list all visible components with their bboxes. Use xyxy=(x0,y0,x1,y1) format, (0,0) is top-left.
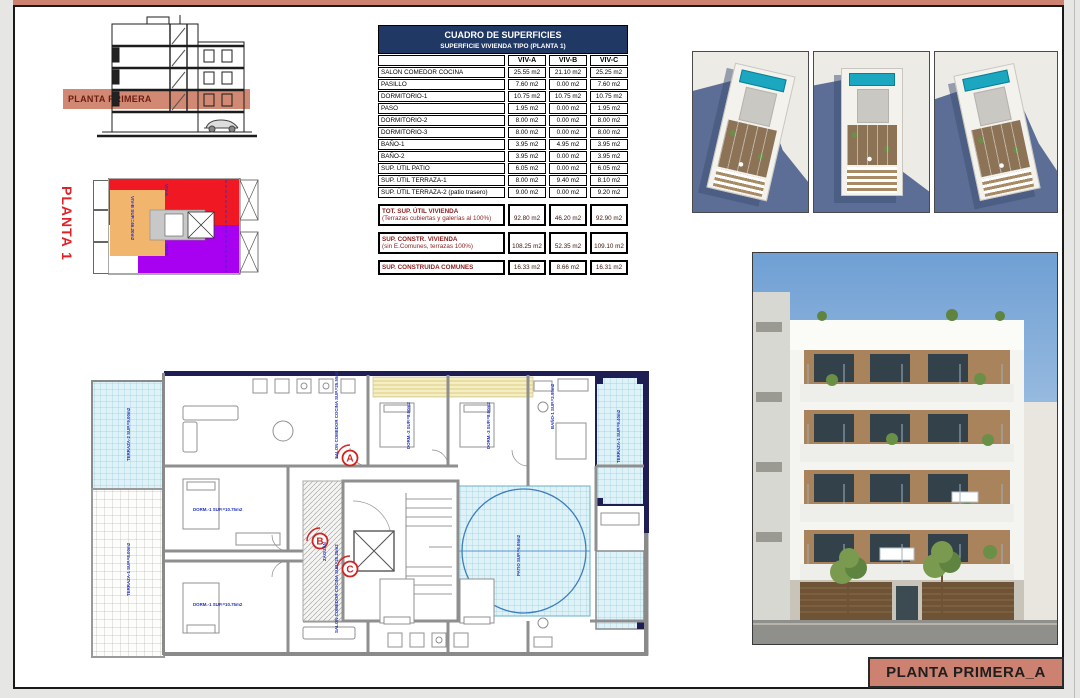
row-value: 8.10 m2 xyxy=(590,175,628,186)
table-summary-row: SUP. CONSTRUIDA COMUNES16.33 m28.66 m216… xyxy=(378,260,628,275)
row-value: 6.05 m2 xyxy=(508,163,546,174)
room-label: DORM.-2 SUP.=8.00m2 xyxy=(406,402,411,449)
table-row: SALON COMEDOR COCINA25.55 m221.10 m225.2… xyxy=(378,67,628,78)
summary-label: SUP. CONSTR. VIVIENDA(sin E.Comunes, ter… xyxy=(378,232,505,254)
row-value: 10.75 m2 xyxy=(549,91,587,102)
table-row: BAÑO-23.95 m20.00 m23.95 m2 xyxy=(378,151,628,162)
table-row: DORMITORIO-28.00 m20.00 m28.00 m2 xyxy=(378,115,628,126)
room-label: DORM.-1 SUP.=10.75m2 xyxy=(193,507,243,512)
elevator-icon xyxy=(354,531,394,571)
row-value: 0.00 m2 xyxy=(549,151,587,162)
sheet-title: PLANTA PRIMERA_A xyxy=(886,664,1046,681)
row-value: 3.95 m2 xyxy=(590,139,628,150)
room-label: BAÑO-1 SUP.=3.95m2 xyxy=(550,383,555,429)
table-row: SUP. ÚTIL PATIO6.05 m20.00 m26.05 m2 xyxy=(378,163,628,174)
table-summary-row: TOT. SUP. ÚTIL VIVIENDA(Terrazas cubiert… xyxy=(378,204,628,226)
row-value: 8.00 m2 xyxy=(508,115,546,126)
summary-value: 92.80 m2 xyxy=(508,204,546,226)
top-accent-bar xyxy=(13,0,1064,5)
row-value: 0.00 m2 xyxy=(549,127,587,138)
table-row: SUP. ÚTIL TERRAZA-2 (patio trasero)9.00 … xyxy=(378,187,628,198)
row-label: PASILLO xyxy=(378,79,505,90)
row-value: 21.10 m2 xyxy=(549,67,587,78)
row-value: 4.95 m2 xyxy=(549,139,587,150)
table-subtitle: SUPERFICIE VIVIENDA TIPO (PLANTA 1) xyxy=(379,43,627,53)
row-value: 3.95 m2 xyxy=(590,151,628,162)
room-label: ZAGUÁN xyxy=(322,542,327,561)
aerial-render-1 xyxy=(692,51,809,213)
aerial-building xyxy=(841,68,903,196)
row-value: 9.00 m2 xyxy=(508,187,546,198)
ground-floor xyxy=(790,580,1024,620)
table-header: CUADRO DE SUPERFICIES SUPERFICIE VIVIEND… xyxy=(378,25,628,54)
table-summary-row: SUP. CONSTR. VIVIENDA(sin E.Comunes, ter… xyxy=(378,232,628,254)
row-value: 6.05 m2 xyxy=(590,163,628,174)
wall xyxy=(162,373,165,655)
row-value: 25.25 m2 xyxy=(590,67,628,78)
table-column-header: VIV-C xyxy=(590,55,628,66)
table-rows: SALON COMEDOR COCINA25.55 m221.10 m225.2… xyxy=(378,67,628,198)
roof-volume xyxy=(973,86,1011,126)
building-section-drawing xyxy=(92,14,262,144)
room-label: DORM.-1 SUP.=10.75m2 xyxy=(193,602,243,607)
row-label: PASO xyxy=(378,103,505,114)
table-row: DORMITORIO-110.75 m210.75 m210.75 m2 xyxy=(378,91,628,102)
roof-volume xyxy=(738,87,777,127)
aerial-render-3 xyxy=(934,51,1058,213)
row-label: SALON COMEDOR COCINA xyxy=(378,67,505,78)
svg-text:C: C xyxy=(346,565,353,576)
row-value: 8.00 m2 xyxy=(590,127,628,138)
row-value: 8.00 m2 xyxy=(590,115,628,126)
summary-value: 109.10 m2 xyxy=(590,232,628,254)
row-value: 9.20 m2 xyxy=(590,187,628,198)
room-label: TERRAZA-1 SUP.=9.40m2 xyxy=(616,409,621,463)
wall xyxy=(164,371,648,376)
table-column-header: VIV-B xyxy=(549,55,587,66)
summary-label: TOT. SUP. ÚTIL VIVIENDA(Terrazas cubiert… xyxy=(378,204,505,226)
row-value: 7.60 m2 xyxy=(508,79,546,90)
table-row: DORMITORIO-38.00 m20.00 m28.00 m2 xyxy=(378,127,628,138)
summary-value: 92.90 m2 xyxy=(590,204,628,226)
room-label: DORM.-3 SUP.=8.00m2 xyxy=(486,402,491,449)
unit-label: VIV-C xyxy=(164,244,169,256)
table-column-headers: VIV-AVIV-BVIV-C xyxy=(378,55,628,66)
summary-value: 108.25 m2 xyxy=(508,232,546,254)
row-value: 0.00 m2 xyxy=(549,187,587,198)
section-annex-block xyxy=(198,42,244,132)
roof-volume xyxy=(857,89,889,123)
section-main-block xyxy=(112,24,198,132)
summary-value: 16.33 m2 xyxy=(508,260,546,275)
terrace-deck xyxy=(717,120,777,178)
terrace-deck xyxy=(971,120,1030,177)
terrace-right-lower xyxy=(596,551,644,629)
row-label: SUP. ÚTIL TERRAZA-2 (patio trasero) xyxy=(378,187,505,198)
surfaces-table: CUADRO DE SUPERFICIES SUPERFICIE VIVIEND… xyxy=(378,25,628,275)
key-plan-title: PLANTA 1 xyxy=(59,186,75,261)
row-value: 25.55 m2 xyxy=(508,67,546,78)
unit-label: VIV-A xyxy=(164,184,169,196)
aerial-render-2 xyxy=(813,51,930,213)
summary-value: 8.66 m2 xyxy=(549,260,587,275)
wall xyxy=(164,652,648,656)
summary-label: SUP. CONSTRUIDA COMUNES xyxy=(378,260,505,275)
row-value: 1.95 m2 xyxy=(508,103,546,114)
row-value: 7.60 m2 xyxy=(590,79,628,90)
room-label: SALON COMEDOR COCINA SUP.=25.25m2 xyxy=(334,544,339,633)
neighbor-building-right xyxy=(1022,402,1058,620)
page-margin-line xyxy=(1074,0,1075,698)
row-value: 0.00 m2 xyxy=(549,103,587,114)
room-label: PATIO SUP.=6.05m2 xyxy=(516,534,521,576)
row-value: 9.40 m2 xyxy=(549,175,587,186)
row-value: 1.95 m2 xyxy=(590,103,628,114)
main-facade xyxy=(790,309,1024,620)
row-value: 10.75 m2 xyxy=(590,91,628,102)
table-column-header: VIV-A xyxy=(508,55,546,66)
room-label: SALON COMEDOR COCINA SUP.=25.55m2 xyxy=(334,371,339,459)
car-icon xyxy=(204,120,238,132)
elevator-icon xyxy=(188,212,214,238)
gallery-strip xyxy=(373,377,533,397)
summary-value: 52.35 m2 xyxy=(549,232,587,254)
row-label: DORMITORIO-1 xyxy=(378,91,505,102)
table-corner-cell xyxy=(378,55,505,66)
row-value: 0.00 m2 xyxy=(549,79,587,90)
table-row: PASO1.95 m20.00 m21.95 m2 xyxy=(378,103,628,114)
table-row: SUP. ÚTIL TERRAZA-18.00 m29.40 m28.10 m2 xyxy=(378,175,628,186)
facade-strip xyxy=(847,167,897,193)
rooftop-pool xyxy=(849,73,895,86)
row-label: SUP. ÚTIL PATIO xyxy=(378,163,505,174)
row-value: 8.00 m2 xyxy=(508,175,546,186)
floor-plan-drawing: ABC SALON COMEDOR COCINA SUP.=25.55m2DOR… xyxy=(88,371,666,663)
row-value: 8.00 m2 xyxy=(508,127,546,138)
row-value: 3.95 m2 xyxy=(508,139,546,150)
row-value: 0.00 m2 xyxy=(549,115,587,126)
room-label: TERRAZA-1 SUP.=8.00m2 xyxy=(126,542,131,596)
terrace-deck xyxy=(847,125,897,165)
table-row: PASILLO7.60 m20.00 m27.60 m2 xyxy=(378,79,628,90)
row-value: 3.95 m2 xyxy=(508,151,546,162)
title-block: PLANTA PRIMERA_A xyxy=(868,657,1064,688)
table-summary: TOT. SUP. ÚTIL VIVIENDA(Terrazas cubiert… xyxy=(378,204,628,275)
table-title: CUADRO DE SUPERFICIES xyxy=(379,26,627,43)
summary-value: 46.20 m2 xyxy=(549,204,587,226)
row-label: DORMITORIO-3 xyxy=(378,127,505,138)
row-label: BAÑO-2 xyxy=(378,151,505,162)
svg-text:A: A xyxy=(346,454,353,465)
row-value: 10.75 m2 xyxy=(508,91,546,102)
summary-value: 16.31 m2 xyxy=(590,260,628,275)
key-plan: PLANTA 1 VIV-AVIV-B SUP.=46.20m2VIV-C xyxy=(45,168,260,294)
neighbor-building-left xyxy=(752,292,790,620)
unit-label: VIV-B SUP.=46.20m2 xyxy=(130,196,135,240)
facade-render xyxy=(752,252,1058,645)
room-label: TERRAZA-2 SUP.=9.00m2 xyxy=(126,407,131,461)
row-label: BAÑO-1 xyxy=(378,139,505,150)
table-row: BAÑO-13.95 m24.95 m23.95 m2 xyxy=(378,139,628,150)
row-label: DORMITORIO-2 xyxy=(378,115,505,126)
row-label: SUP. ÚTIL TERRAZA-1 xyxy=(378,175,505,186)
row-value: 0.00 m2 xyxy=(549,163,587,174)
